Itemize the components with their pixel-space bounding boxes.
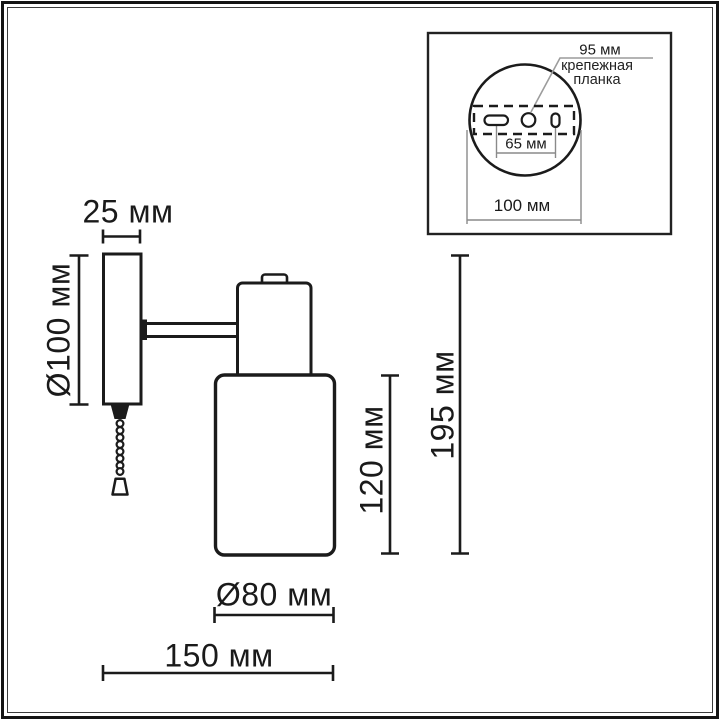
callout-line2: планка	[561, 73, 633, 87]
screw-hole-center	[522, 113, 536, 127]
label-mounting-bar-callout: крепежная планка	[561, 59, 633, 87]
label-slot-spacing: 65 мм	[505, 136, 546, 153]
label-plate-width: 25 мм	[83, 194, 174, 231]
dim-line-plate-width	[103, 230, 140, 244]
wall-plate	[104, 254, 142, 404]
screw-slot-right	[552, 114, 560, 128]
label-shade-diameter: Ø80 мм	[216, 577, 332, 614]
label-leader-value: 95 мм	[579, 42, 620, 59]
label-backplate-diameter: Ø100 мм	[41, 263, 78, 398]
screw-slot-left	[485, 116, 509, 126]
lamp-holder-body	[238, 283, 312, 379]
pull-chain	[117, 420, 124, 475]
pull-cone	[113, 479, 128, 495]
label-total-height: 195 мм	[425, 350, 462, 459]
technical-drawing	[0, 0, 720, 720]
mounting-arm	[146, 324, 238, 337]
label-base-width: 100 мм	[494, 196, 550, 216]
label-shade-height: 120 мм	[354, 405, 391, 514]
lamp-shade	[216, 375, 335, 555]
chain-anchor	[111, 404, 130, 419]
lamp-dimension-diagram: 25 мм Ø100 мм 120 мм 195 мм Ø80 мм 150 м…	[0, 0, 720, 720]
callout-line1: крепежная	[561, 59, 633, 73]
label-total-depth: 150 мм	[164, 638, 273, 675]
